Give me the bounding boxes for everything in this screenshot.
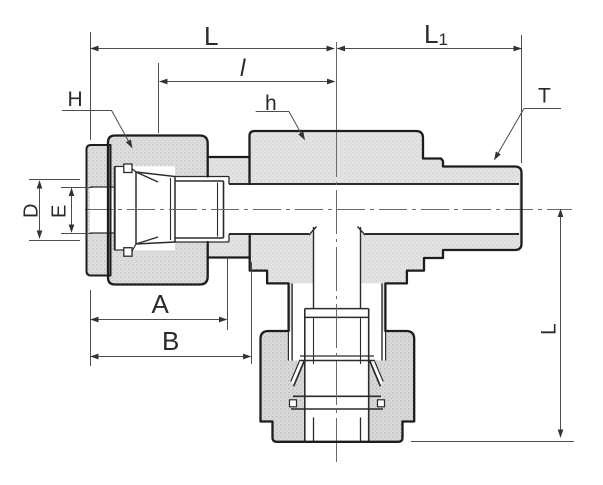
svg-text:l: l [240,55,246,82]
svg-text:E: E [49,205,71,218]
svg-text:h: h [265,92,277,115]
svg-text:L: L [538,323,561,335]
svg-text:D: D [21,204,43,218]
svg-text:A: A [152,289,170,319]
svg-text:B: B [162,326,179,356]
svg-text:T: T [538,85,551,108]
svg-text:L: L [204,21,218,51]
svg-text:H: H [68,88,83,111]
